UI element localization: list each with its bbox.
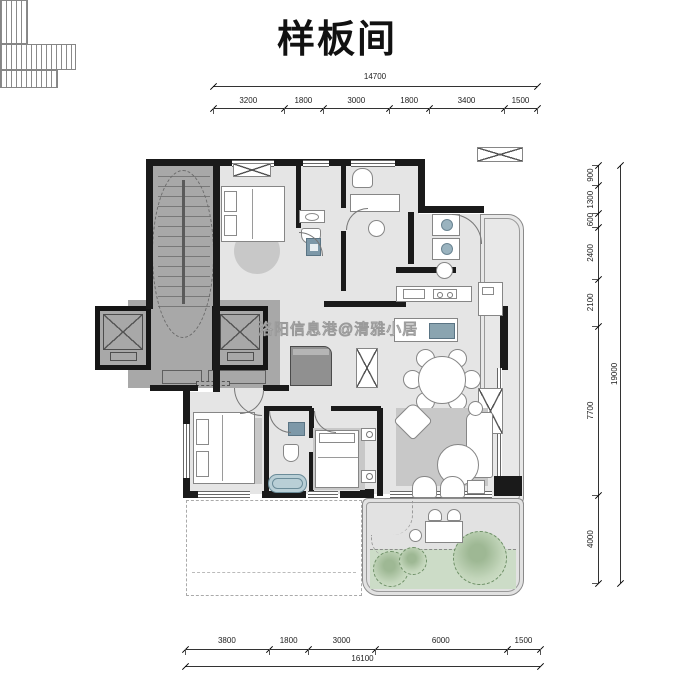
dimension-tick (537, 663, 544, 670)
wall-segment (418, 159, 425, 213)
blanket-line (222, 415, 223, 481)
window (351, 160, 395, 167)
dimension-segment-label: 1800 (389, 96, 429, 106)
pillow (224, 191, 237, 212)
wall-segment (341, 231, 346, 291)
dimension-segment-label: 1800 (284, 96, 324, 106)
dimension-extension (592, 495, 598, 496)
dimension-line (185, 666, 540, 667)
kitchen-sink (403, 289, 425, 299)
desk-chair (368, 220, 385, 237)
pillow (224, 215, 237, 236)
dimension-segment-label: 1500 (504, 96, 537, 106)
lamp-icon (366, 473, 373, 480)
burner (437, 292, 443, 298)
dimension-extension (592, 165, 598, 166)
dimension-extension (540, 649, 541, 655)
dimension-extension (592, 326, 598, 327)
elevator-door (227, 352, 254, 361)
dimension-segment-label: 3000 (323, 96, 389, 106)
dining-table (418, 356, 466, 404)
dimension-segment-label: 3400 (429, 96, 504, 106)
window (183, 424, 190, 478)
dimension-segment-label: 2400 (586, 227, 595, 280)
pillow (196, 419, 209, 445)
cooktop (433, 289, 457, 299)
elevator (95, 306, 151, 370)
wall-segment (341, 166, 346, 208)
bed (221, 186, 285, 242)
dimension-extension (592, 279, 598, 280)
terrace-chair (428, 509, 442, 521)
wall-segment (408, 212, 414, 264)
kitchen-counter (396, 286, 472, 302)
hall-cabinet (0, 0, 28, 44)
watermark: 洛阳信息港@清雅小居 (258, 318, 418, 339)
open-area-dashed-line (192, 572, 356, 573)
window (198, 491, 250, 498)
dimension-extension (592, 583, 598, 584)
wall-segment (377, 408, 383, 496)
dimension-segment-label: 2100 (586, 279, 595, 325)
toilet (283, 444, 299, 462)
nightstand (361, 428, 376, 441)
dimension-segment-label: 3200 (213, 96, 284, 106)
bed (315, 430, 359, 488)
dimension-extension (323, 108, 324, 114)
wall-segment (418, 206, 484, 213)
dimension-extension (308, 649, 309, 655)
lounge-chair (440, 476, 465, 498)
piano (290, 346, 332, 386)
bed (193, 412, 255, 484)
dimension-segment-label: 3000 (308, 636, 374, 646)
elevator-cross-icon (103, 314, 143, 350)
nightstand (361, 470, 376, 483)
dimension-segment-label: 3800 (185, 636, 269, 646)
dimension-extension (592, 213, 598, 214)
piano-keys (293, 349, 329, 355)
bathtub-basin (272, 478, 303, 489)
dimension-extension (284, 108, 285, 114)
walk-in-closet (0, 44, 76, 70)
wall-segment (494, 476, 522, 496)
dimension-extension (429, 108, 430, 114)
closet (0, 70, 58, 88)
dimension-total-label: 19000 (610, 165, 619, 583)
washbasin (299, 210, 325, 223)
dimension-line (213, 86, 537, 87)
dimension-extension (389, 108, 390, 114)
lamp-icon (366, 431, 373, 438)
dimension-total-label: 14700 (213, 72, 537, 82)
cabinet-shelf (482, 287, 494, 295)
dimension-segment-label: 1800 (269, 636, 309, 646)
wall-segment (213, 159, 220, 392)
side-table (467, 480, 485, 494)
burner (447, 292, 453, 298)
dimension-segment-label: 1500 (507, 636, 540, 646)
terrace-table (425, 521, 463, 543)
dimension-extension (592, 227, 598, 228)
dimension-segment-label: 6000 (375, 636, 507, 646)
dimension-total-label: 16100 (185, 654, 540, 664)
armchair (352, 168, 373, 188)
lounge-chair (412, 476, 437, 498)
open-area-dashed (186, 500, 362, 596)
wall-segment (150, 385, 198, 391)
dimension-extension (213, 108, 214, 114)
side-ball-table (468, 401, 483, 416)
elevator-cross-icon (220, 314, 260, 350)
ac-unit-icon (477, 147, 523, 162)
blanket-line (318, 457, 358, 458)
dimension-tick (534, 83, 541, 90)
bathtub (268, 474, 307, 493)
island-appliance (429, 323, 455, 339)
wall-segment (324, 301, 406, 307)
wall-segment (360, 489, 374, 498)
dimension-line (213, 108, 537, 109)
terrace-stool (409, 529, 422, 542)
dimension-line (185, 649, 540, 650)
dimension-segment-label: 1300 (586, 185, 595, 214)
dimension-extension (537, 108, 538, 114)
dimension-line (620, 165, 621, 583)
basin-bowl (305, 213, 319, 221)
dimension-segment-label: 7700 (586, 326, 595, 495)
window (303, 160, 329, 167)
dimension-segment-label: 600 (586, 213, 595, 226)
dimension-extension (185, 649, 186, 655)
floor-plan: 洛阳信息港@清雅小居 14700320018003000180034001500… (0, 0, 674, 674)
wall-segment (263, 385, 289, 391)
water-heater (436, 262, 453, 279)
shrub (399, 547, 427, 575)
wall-segment (331, 406, 381, 411)
blanket-line (252, 189, 253, 239)
dimension-extension (375, 649, 376, 655)
wall-segment (146, 159, 153, 309)
dryer-door-icon (441, 243, 453, 255)
display-cabinet (356, 348, 378, 388)
pillow (196, 451, 209, 477)
terrace-chair (447, 509, 461, 521)
elevator-door (110, 352, 137, 361)
terrace (362, 498, 524, 596)
pillow (319, 433, 355, 443)
ac-unit-icon (233, 163, 271, 177)
dimension-extension (592, 185, 598, 186)
window (308, 491, 338, 498)
tall-cabinet (478, 282, 503, 316)
dimension-extension (507, 649, 508, 655)
dimension-extension (504, 108, 505, 114)
floor-plan-page: 样板间 (0, 0, 674, 674)
dimension-segment-label: 4000 (586, 495, 595, 583)
stairs-walkline (152, 170, 214, 338)
dimension-extension (269, 649, 270, 655)
